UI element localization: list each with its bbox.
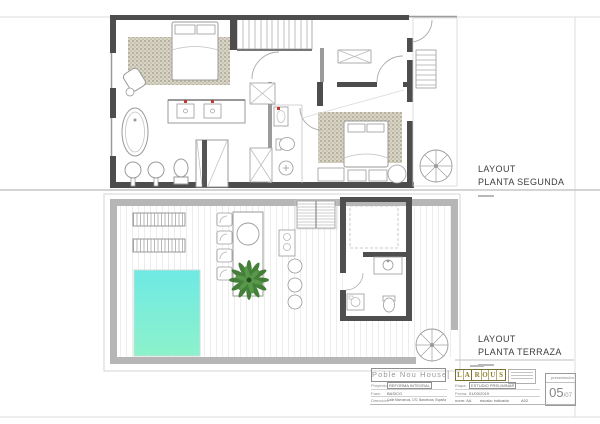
direccion-value: Calle Marruecos, 170, Barcelona, España xyxy=(387,398,447,402)
logo-letter: L xyxy=(456,370,464,380)
scale-note-1 xyxy=(478,195,494,197)
label-layout-2: LAYOUT xyxy=(478,333,588,346)
floor-plan-drawing xyxy=(0,0,600,424)
sheet-number-box: presentación 05/07 xyxy=(545,373,576,406)
drawing-sheet: by Baerz & Co LUXURY HOME LAYOUT PLANTA … xyxy=(0,0,600,424)
larous-logo: L A R O U S xyxy=(455,369,506,381)
spiral-staircase-icon xyxy=(420,150,452,182)
logo-letter: O xyxy=(482,370,490,380)
toilet-icon xyxy=(174,159,188,184)
proyecto-value: REFORMA INTEGRAL xyxy=(387,382,432,389)
label-planta-segunda-text: PLANTA SEGUNDA xyxy=(478,176,588,189)
logo-letter: S xyxy=(497,370,505,380)
kitchenette-icon xyxy=(279,230,295,256)
wardrobe-icon xyxy=(196,140,228,187)
presentation-label: presentación xyxy=(546,374,575,383)
bed2-icon xyxy=(344,121,388,167)
stool-icons xyxy=(288,259,302,309)
lower-floor-plan xyxy=(104,194,460,371)
pool xyxy=(134,270,200,356)
logo-letter: U xyxy=(489,370,497,380)
staircase-icon xyxy=(237,18,312,50)
sheet-number: 05/07 xyxy=(546,383,575,406)
proyecto-label: Proyecto: xyxy=(371,383,388,388)
logo-letter: A xyxy=(464,370,472,380)
title-block-bottom-line xyxy=(370,404,575,405)
logo-micro-text xyxy=(470,365,484,367)
spiral-staircase2-icon xyxy=(416,329,448,361)
project-name: Poble Nou House xyxy=(371,368,446,382)
upper-floor-plan xyxy=(110,15,457,188)
bathtub-icon xyxy=(122,108,148,156)
label-layout-1: LAYOUT xyxy=(478,163,588,176)
separator: | xyxy=(447,369,449,379)
etapa-value: ESTUDIO PRELIMINAR xyxy=(469,382,516,389)
vanity-icon xyxy=(168,100,245,123)
bed-icon xyxy=(172,22,218,80)
wc-room xyxy=(272,105,302,183)
exterior-stair-icon xyxy=(416,50,436,88)
logo-letter: R xyxy=(474,370,482,380)
label-planta-terraza: LAYOUT PLANTA TERRAZA xyxy=(478,333,588,359)
norma-text: norm: AA xyxy=(455,398,471,403)
planter-icon xyxy=(237,223,259,245)
etapa-label: Etapa: xyxy=(455,383,467,388)
bedroom2-bench xyxy=(318,165,406,183)
label-planta-segunda: LAYOUT PLANTA SEGUNDA xyxy=(478,163,588,189)
formato-text: A02 xyxy=(521,398,528,403)
stair-up-icon xyxy=(295,200,337,229)
label-planta-terraza-text: PLANTA TERRAZA xyxy=(478,346,588,359)
escala-text: escala: indicada xyxy=(480,398,509,403)
